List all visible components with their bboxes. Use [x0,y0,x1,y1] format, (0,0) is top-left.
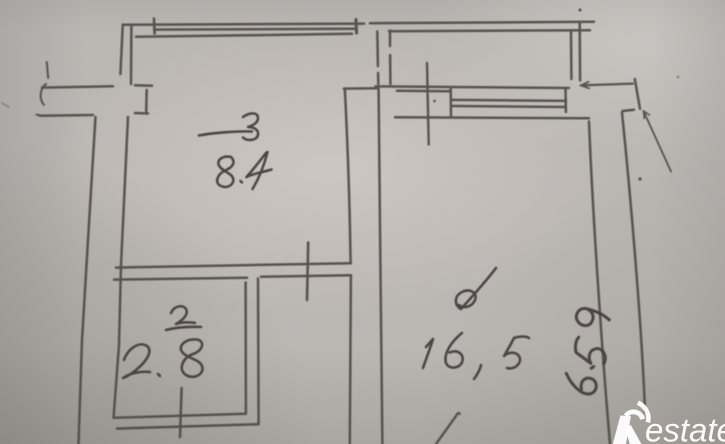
svg-text:estate: estate [645,412,725,444]
